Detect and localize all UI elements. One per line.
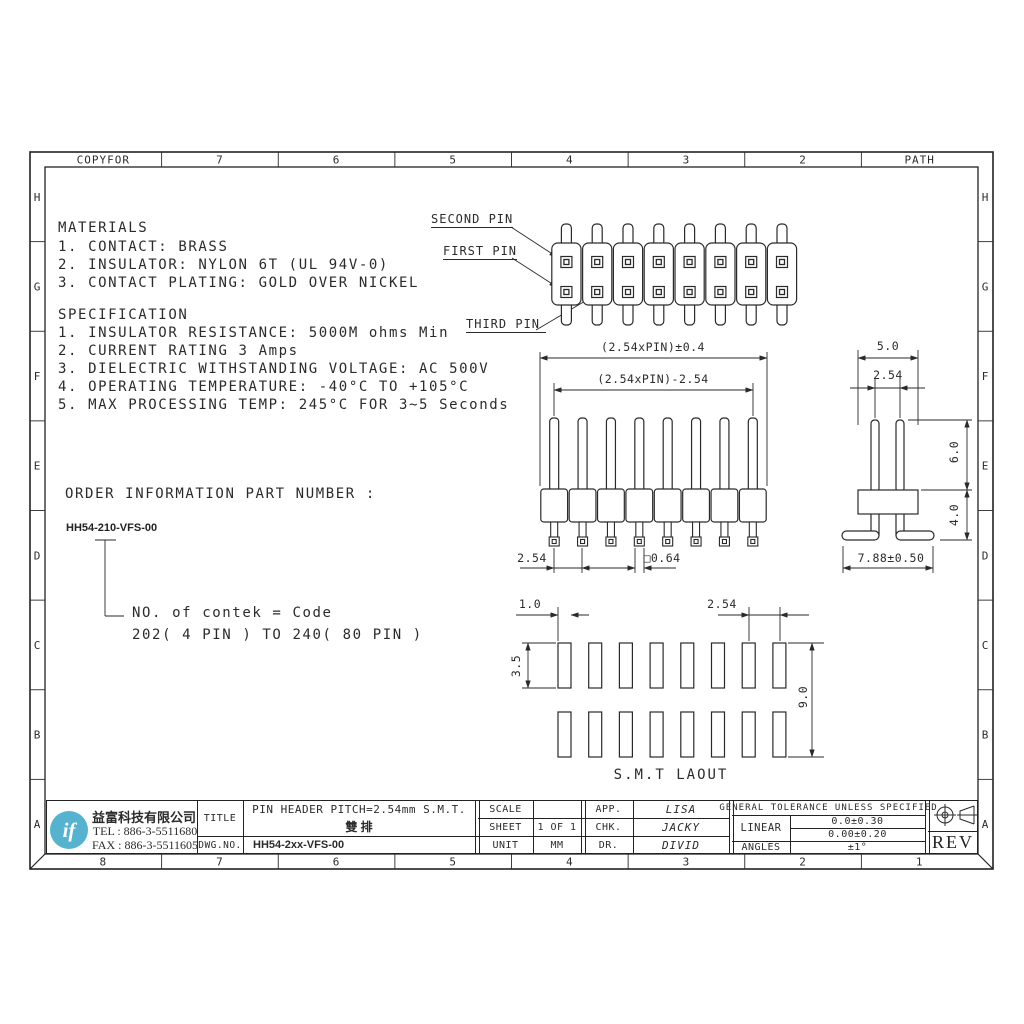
ruler-right-label: A: [982, 818, 990, 831]
specification-item: 3. DIELECTRIC WITHSTANDING VOLTAGE: AC 5…: [58, 361, 489, 377]
drawing-title-line2: 雙 排: [243, 818, 475, 834]
company-name: 益富科技有限公司: [93, 808, 195, 824]
front-view: [541, 418, 766, 546]
app-label: APP.: [584, 800, 633, 818]
materials-heading: MATERIALS: [58, 220, 148, 236]
ruler-bottom-label: 7: [216, 856, 224, 869]
scale-label: SCALE: [478, 800, 533, 818]
company-logo: if: [50, 811, 88, 849]
smt-layout-label: S.M.T LAOUT: [614, 767, 729, 783]
ruler-top-label: COPYFOR: [77, 154, 130, 167]
dim-side-pin-height: 6.0: [947, 441, 961, 463]
order-note-line1: NO. of contek = Code: [132, 605, 333, 621]
ruler-right-label: D: [982, 549, 990, 562]
company-fax: FAX : 886-3-5511605: [94, 839, 196, 852]
ruler-bottom-label: 5: [449, 856, 457, 869]
leader-second-pin: [511, 227, 557, 257]
dim-side-pitch: 2.54: [873, 368, 903, 382]
dim-side-body-height: 4.0: [947, 504, 961, 526]
unit-value: MM: [533, 836, 581, 854]
order-note-line2: 202( 4 PIN ) TO 240( 80 PIN ): [132, 627, 423, 643]
tolerance-header: GENERAL TOLERANCE UNLESS SPECIFIED: [732, 800, 925, 815]
ruler-left-label: C: [34, 639, 42, 652]
angles-value: ±1°: [790, 841, 925, 854]
side-view: [842, 420, 934, 540]
dim-front-pin-square: □0.64: [643, 551, 680, 565]
dim-front-overall: (2.54xPIN)±0.4: [601, 340, 705, 354]
ruler-bottom-label: 1: [916, 856, 924, 869]
dr-value: DIVID: [633, 836, 729, 854]
dim-smt-pad-width: 1.0: [519, 597, 541, 611]
third-pin-label: THIRD PIN: [466, 317, 546, 333]
ruler-right-label: E: [982, 460, 990, 473]
ruler-right-label: C: [982, 639, 990, 652]
linear-label: LINEAR: [732, 815, 790, 841]
ruler-bottom-label: 2: [799, 856, 807, 869]
dim-side-foot-span: 7.88±0.50: [858, 551, 925, 565]
company-tel: TEL : 886-3-5511680: [94, 825, 196, 838]
dim-smt-pad-height: 3.5: [509, 655, 523, 677]
order-info-heading: ORDER INFORMATION PART NUMBER :: [65, 486, 376, 502]
app-value: LISA: [633, 800, 729, 818]
dr-label: DR.: [584, 836, 633, 854]
ruler-top-label: 7: [216, 154, 224, 167]
dim-front-pitch: 2.54: [517, 551, 547, 565]
specification-item: 4. OPERATING TEMPERATURE: -40°C TO +105°…: [58, 379, 469, 395]
unit-label: UNIT: [478, 836, 533, 854]
dim-smt-pitch: 2.54: [707, 597, 737, 611]
ruler-left-label: F: [34, 370, 42, 383]
first-pin-label: FIRST PIN: [443, 244, 517, 260]
dim-side-width: 5.0: [877, 339, 899, 353]
ruler-right-label: B: [982, 729, 990, 742]
title-label: TITLE: [197, 800, 243, 836]
specification-item: 5. MAX PROCESSING TEMP: 245°C FOR 3~5 Se…: [58, 397, 509, 413]
specification-item: 2. CURRENT RATING 3 Amps: [58, 343, 299, 359]
drawing-lineart: COPYFOR765432PATH87654321HHGGFFEEDDCCBBA…: [0, 0, 1024, 1024]
chk-value: JACKY: [633, 818, 729, 836]
angles-label: ANGLES: [732, 841, 790, 854]
top-view: [552, 224, 797, 325]
scale-value: [533, 800, 581, 818]
materials-item: 3. CONTACT PLATING: GOLD OVER NICKEL: [58, 275, 419, 291]
ruler-top-label: 2: [799, 154, 807, 167]
materials-item: 1. CONTACT: BRASS: [58, 239, 229, 255]
ruler-top-label: PATH: [904, 154, 935, 167]
order-part-number: HH54-210-VFS-00: [66, 522, 157, 534]
ruler-left-label: H: [34, 191, 42, 204]
dim-front-span: (2.54xPIN)-2.54: [597, 372, 708, 386]
leader-first-pin: [512, 258, 557, 287]
specification-heading: SPECIFICATION: [58, 307, 188, 323]
ruler-right-label: G: [982, 280, 990, 293]
dim-smt-row-span: 9.0: [796, 686, 810, 708]
dwg-no-label: DWG.NO.: [197, 836, 243, 854]
drawing-title-line1: PIN HEADER PITCH=2.54mm S.M.T.: [243, 802, 475, 817]
linear-tolerance-2: 0.00±0.20: [790, 828, 925, 841]
drawing-sheet: COPYFOR765432PATH87654321HHGGFFEEDDCCBBA…: [0, 0, 1024, 1024]
ruler-left-label: E: [34, 460, 42, 473]
second-pin-label: SECOND PIN: [431, 212, 513, 228]
ruler-top-label: 5: [449, 154, 457, 167]
ruler-right-label: F: [982, 370, 990, 383]
materials-item: 2. INSULATOR: NYLON 6T (UL 94V-0): [58, 257, 389, 273]
ruler-left-label: A: [34, 818, 42, 831]
dwg-no-value: HH54-2xx-VFS-00: [253, 836, 403, 854]
ruler-left-label: G: [34, 280, 42, 293]
ruler-left-label: D: [34, 549, 42, 562]
linear-tolerance-1: 0.0±0.30: [790, 815, 925, 828]
ruler-top-label: 4: [566, 154, 574, 167]
chk-label: CHK.: [584, 818, 633, 836]
specification-item: 1. INSULATOR RESISTANCE: 5000M ohms Min: [58, 325, 449, 341]
ruler-bottom-label: 3: [683, 856, 691, 869]
rev-label: REV: [928, 831, 978, 854]
ruler-top-label: 3: [683, 154, 691, 167]
ruler-bottom-label: 6: [333, 856, 341, 869]
smt-layout-view: [558, 643, 786, 757]
ruler-right-label: H: [982, 191, 990, 204]
sheet-value: 1 OF 1: [533, 818, 581, 836]
ruler-bottom-label: 4: [566, 856, 574, 869]
sheet-label: SHEET: [478, 818, 533, 836]
ruler-top-label: 6: [333, 154, 341, 167]
ruler-left-label: B: [34, 729, 42, 742]
ruler-bottom-label: 8: [100, 856, 108, 869]
